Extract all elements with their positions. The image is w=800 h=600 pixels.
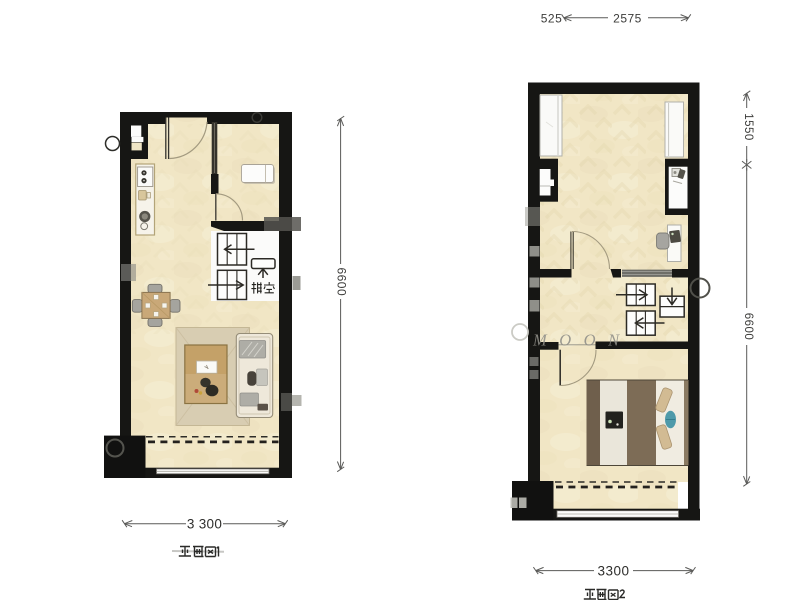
svg-text:6600: 6600 [334,267,348,296]
svg-text:525: 525 [541,12,563,26]
svg-text:MOON: MOON [532,331,632,350]
svg-text:3300: 3300 [597,564,629,579]
svg-text:2575: 2575 [613,12,642,26]
svg-text:1550: 1550 [742,113,754,141]
svg-text:3 300: 3 300 [187,516,222,531]
svg-text:6600: 6600 [742,313,754,341]
